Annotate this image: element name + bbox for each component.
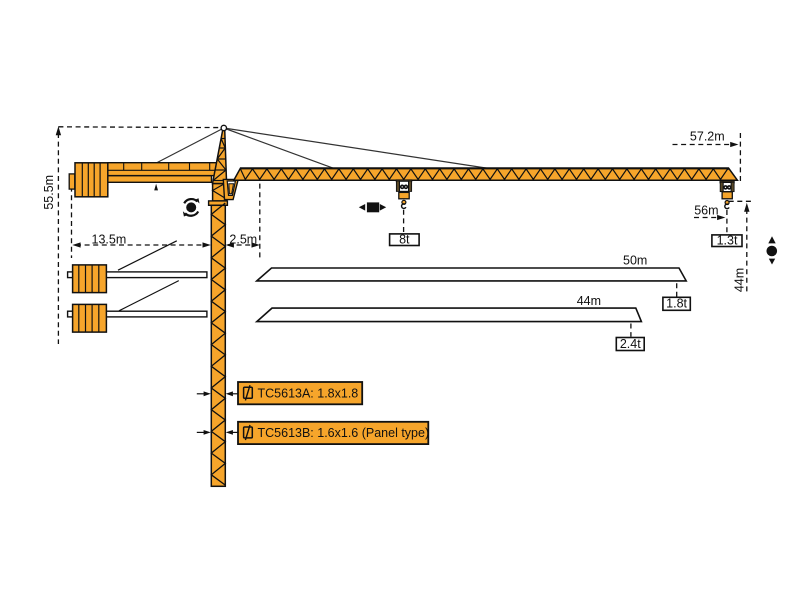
- svg-text:TC5613A: 1.8x1.8: TC5613A: 1.8x1.8: [258, 386, 359, 400]
- svg-text:44m: 44m: [733, 268, 747, 292]
- svg-text:TC5613B: 1.6x1.6 (Panel type): TC5613B: 1.6x1.6 (Panel type): [258, 426, 430, 440]
- svg-text:2.4t: 2.4t: [620, 337, 641, 351]
- svg-text:1.3t: 1.3t: [717, 234, 738, 248]
- svg-text:55.5m: 55.5m: [42, 175, 56, 210]
- svg-text:1.8t: 1.8t: [666, 297, 687, 311]
- svg-text:56m: 56m: [694, 203, 718, 217]
- svg-text:13.5m: 13.5m: [92, 232, 127, 246]
- svg-text:50m: 50m: [623, 254, 647, 268]
- svg-text:44m: 44m: [577, 294, 601, 308]
- svg-text:8t: 8t: [399, 233, 410, 247]
- svg-text:57.2m: 57.2m: [690, 130, 725, 144]
- svg-text:2.5m: 2.5m: [229, 232, 257, 246]
